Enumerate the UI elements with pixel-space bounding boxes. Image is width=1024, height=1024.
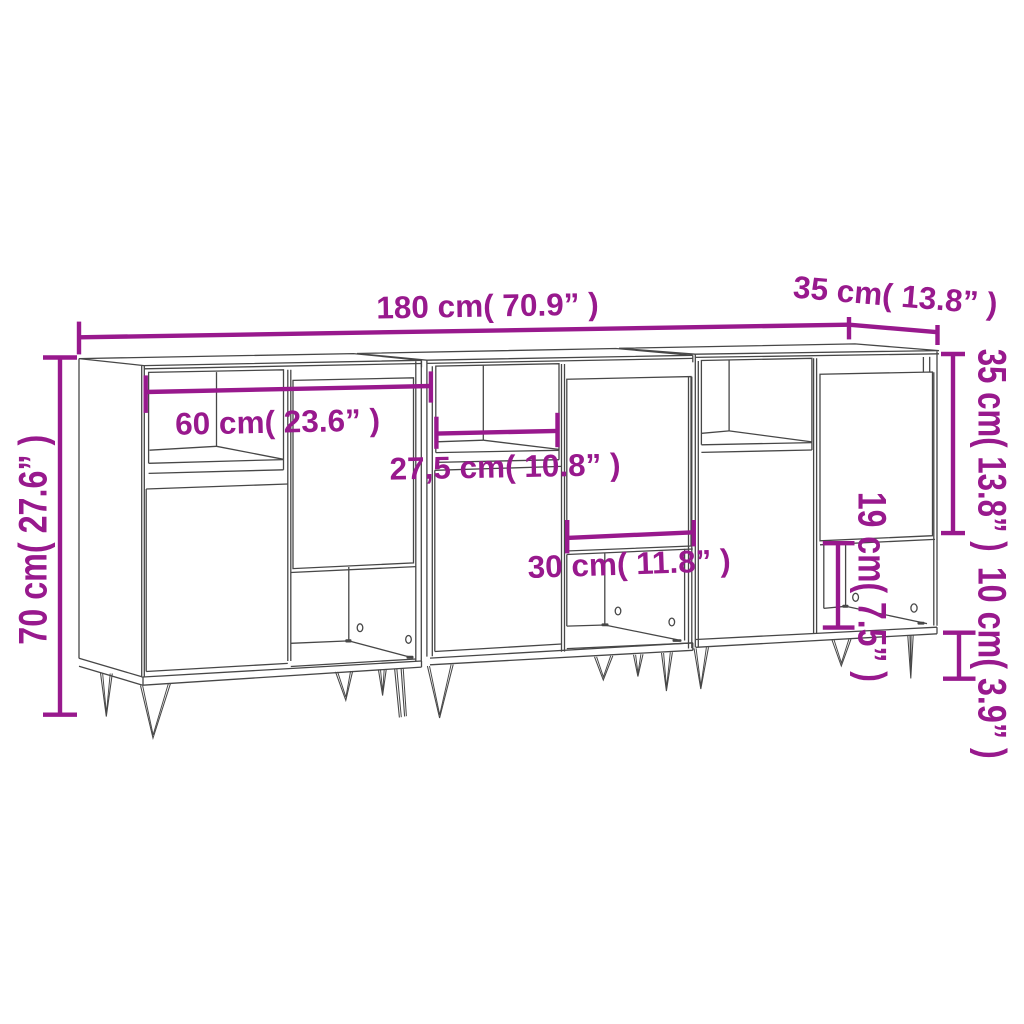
svg-text:70 cm( 27.6” ): 70 cm( 27.6” ) <box>12 435 56 645</box>
svg-text:60 cm( 23.6” ): 60 cm( 23.6” ) <box>175 402 381 442</box>
svg-text:35 cm( 13.8” ): 35 cm( 13.8” ) <box>970 349 1014 552</box>
svg-text:10 cm( 3.9” ): 10 cm( 3.9” ) <box>970 567 1014 759</box>
svg-text:30 cm( 11.8” ): 30 cm( 11.8” ) <box>527 542 731 585</box>
svg-text:19 cm( 7.5” ): 19 cm( 7.5” ) <box>850 492 894 682</box>
svg-text:180 cm( 70.9” ): 180 cm( 70.9” ) <box>376 286 599 326</box>
svg-text:27,5 cm( 10.8” ): 27,5 cm( 10.8” ) <box>389 446 621 486</box>
